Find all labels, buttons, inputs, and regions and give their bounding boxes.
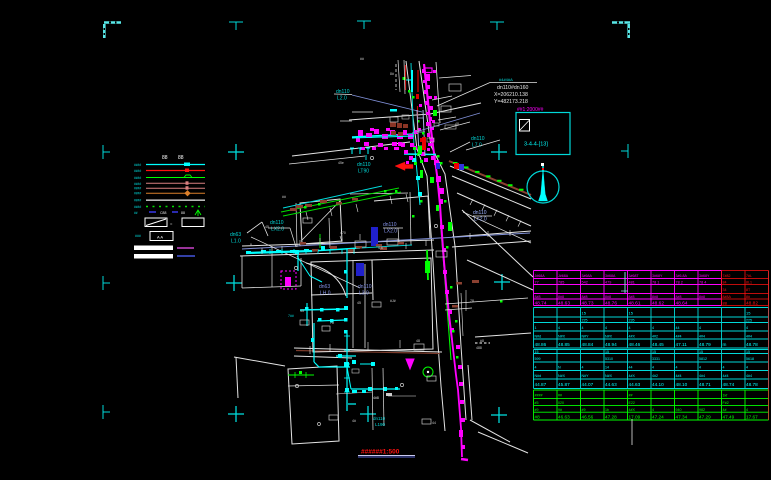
svg-text:48.82: 48.82	[746, 301, 758, 307]
svg-text:44.87: 44.87	[535, 382, 547, 387]
svg-text:dn110: dn110	[383, 222, 397, 228]
svg-text:N#d: N#d	[535, 335, 542, 339]
svg-text:dn110: dn110	[473, 210, 487, 216]
svg-text:Y=482173.218: Y=482173.218	[494, 99, 528, 105]
svg-text:L1.0: L1.0	[231, 239, 241, 245]
svg-text:47.24: 47.24	[652, 415, 664, 420]
svg-text:4: 4	[605, 326, 607, 330]
svg-text:4.6: 4.6	[378, 246, 383, 250]
svg-text:8#8: 8#8	[582, 295, 588, 299]
svg-text:dn110: dn110	[471, 136, 485, 142]
svg-text:15: 15	[746, 311, 751, 316]
svg-text:940: 940	[676, 408, 682, 412]
svg-text:J#68A: J#68A	[535, 274, 546, 278]
svg-text:15: 15	[699, 350, 703, 354]
svg-text:48.10: 48.10	[676, 382, 688, 387]
svg-text:5310: 5310	[605, 357, 613, 361]
svg-text:3#68T: 3#68T	[629, 274, 640, 278]
svg-text:44.63: 44.63	[629, 382, 641, 387]
svg-text:17.09: 17.09	[629, 415, 641, 420]
svg-text:48.94: 48.94	[605, 342, 617, 347]
svg-text:78 4: 78 4	[699, 281, 706, 285]
svg-text:47.11: 47.11	[676, 342, 688, 347]
svg-text:48.62: 48.62	[652, 301, 664, 307]
svg-text:48.45: 48.45	[652, 342, 664, 347]
svg-text:LX2.0: LX2.0	[384, 229, 397, 235]
svg-text:##: ##	[134, 211, 138, 215]
svg-text:47.29: 47.29	[699, 415, 711, 420]
svg-text:77: 77	[535, 281, 539, 285]
svg-text:8: 8	[250, 243, 252, 247]
svg-text:88: 88	[178, 155, 184, 161]
svg-text:982: 982	[699, 408, 705, 412]
svg-text:5618: 5618	[746, 357, 754, 361]
svg-text:4: 4	[652, 408, 654, 412]
svg-text:####: ####	[134, 187, 141, 191]
svg-text:4#X: 4#X	[629, 374, 636, 378]
svg-text:235: 235	[629, 319, 635, 323]
svg-text:470: 470	[340, 231, 346, 235]
svg-text:88: 88	[162, 155, 168, 161]
svg-text:48.86: 48.86	[535, 342, 547, 347]
svg-text:1: 1	[535, 326, 537, 330]
svg-text:48.63: 48.63	[558, 301, 570, 307]
svg-text:48.74: 48.74	[535, 301, 547, 307]
svg-text:46.63: 46.63	[558, 415, 570, 420]
svg-text:15: 15	[605, 350, 609, 354]
svg-text:4#: 4#	[723, 408, 727, 412]
svg-text:8L1: 8L1	[746, 281, 752, 285]
svg-text:dn63: dn63	[319, 284, 330, 290]
svg-text:8#8: 8#8	[535, 295, 541, 299]
svg-text:84: 84	[723, 281, 727, 285]
svg-text:L2.0: L2.0	[337, 96, 347, 102]
svg-text:######1:500: ######1:500	[361, 449, 400, 456]
svg-text:3#68Y: 3#68Y	[699, 274, 710, 278]
svg-text:#8: #8	[535, 415, 541, 420]
svg-text:48.76: 48.76	[605, 301, 617, 307]
svg-text:5812: 5812	[699, 357, 707, 361]
svg-text:4#: 4#	[352, 419, 356, 423]
svg-text:##: ##	[558, 394, 562, 398]
svg-text:A A: A A	[157, 235, 163, 240]
svg-text:####: ####	[134, 199, 141, 203]
svg-text:8#8: 8#8	[605, 295, 611, 299]
svg-text:44: 44	[432, 421, 436, 425]
svg-text:4#4: 4#4	[746, 335, 752, 339]
svg-text:15: 15	[582, 311, 587, 316]
svg-text:4#4: 4#4	[676, 335, 682, 339]
svg-text:3331: 3331	[652, 357, 660, 361]
svg-text:###: ###	[135, 234, 141, 238]
svg-text:15: 15	[652, 350, 656, 354]
svg-text:L=2.0: L=2.0	[474, 217, 487, 223]
svg-text:47.49: 47.49	[723, 415, 735, 420]
svg-text:dn110: dn110	[357, 162, 371, 168]
svg-text:4#8: 4#8	[373, 396, 379, 400]
svg-text:44: 44	[676, 326, 680, 330]
svg-text:48.74: 48.74	[723, 382, 735, 387]
svg-text:7#: 7#	[330, 321, 334, 325]
svg-text:44.10: 44.10	[652, 382, 664, 387]
svg-text:47.34: 47.34	[676, 415, 688, 420]
svg-text:14: 14	[605, 366, 609, 370]
svg-text:3#68Y: 3#68Y	[652, 274, 663, 278]
svg-text:44.63: 44.63	[605, 382, 617, 387]
svg-text:####: ####	[535, 394, 543, 398]
svg-text:785: 785	[558, 281, 564, 285]
svg-text:8#: 8#	[390, 72, 394, 76]
svg-text:8#8: 8#8	[652, 295, 658, 299]
svg-text:48: 48	[416, 339, 420, 343]
svg-text:####: ####	[134, 192, 141, 196]
svg-text:##: ##	[282, 195, 286, 199]
svg-text:dn110#dn160: dn110#dn160	[497, 85, 528, 91]
svg-text:#4#4#A: #4#4#A	[499, 77, 513, 82]
svg-text:dn110: dn110	[270, 220, 284, 226]
svg-text:48.46: 48.46	[629, 342, 641, 347]
svg-text:####: ####	[134, 169, 141, 173]
svg-text:7#82: 7#82	[723, 274, 731, 278]
svg-text:4: 4	[582, 326, 584, 330]
svg-text:4: 4	[699, 366, 701, 370]
svg-text:####: ####	[134, 182, 141, 186]
svg-text:488: 488	[476, 346, 482, 350]
svg-text:48.79: 48.79	[699, 342, 711, 347]
svg-text:m: m	[723, 342, 727, 347]
svg-text:####: ####	[134, 205, 141, 209]
svg-text:44.07: 44.07	[582, 382, 594, 387]
svg-text:7##: 7##	[288, 314, 294, 318]
svg-text:4: 4	[629, 326, 631, 330]
svg-text:N#X: N#X	[605, 374, 613, 378]
svg-text:8#8A: 8#8A	[723, 295, 732, 299]
svg-text:#9: #9	[582, 408, 586, 412]
svg-text:479: 479	[605, 281, 611, 285]
svg-text:N#d: N#d	[535, 374, 542, 378]
svg-text:34: 34	[723, 288, 727, 292]
svg-text:48.78: 48.78	[746, 382, 758, 387]
svg-text:F#2: F#2	[723, 401, 729, 405]
svg-text:4: 4	[535, 366, 537, 370]
svg-text:47.28: 47.28	[605, 415, 617, 420]
svg-text:8#8: 8#8	[676, 295, 682, 299]
svg-text:##: ##	[360, 57, 364, 61]
svg-text:N#X: N#X	[558, 335, 566, 339]
svg-text:4: 4	[699, 326, 701, 330]
svg-text:48.84: 48.84	[582, 342, 594, 347]
svg-text:4: 4	[652, 366, 654, 370]
svg-text:dn110: dn110	[358, 284, 372, 290]
svg-text:3#6.8A: 3#6.8A	[676, 274, 688, 278]
svg-text:N#Y: N#Y	[582, 374, 590, 378]
svg-text:45: 45	[300, 309, 304, 313]
svg-text:#5: #5	[535, 401, 539, 405]
svg-text:LH.0: LH.0	[320, 291, 331, 297]
svg-text:4#4: 4#4	[699, 374, 705, 378]
svg-text:dn110: dn110	[373, 416, 386, 421]
svg-text:8#8: 8#8	[629, 295, 635, 299]
svg-text:48.71: 48.71	[699, 382, 711, 387]
svg-text:4#4: 4#4	[746, 374, 752, 378]
svg-text:LX2.0: LX2.0	[271, 227, 284, 233]
svg-text:4: 4	[746, 366, 748, 370]
svg-text:48.85: 48.85	[558, 342, 570, 347]
svg-text:9#: 9#	[558, 408, 562, 412]
svg-text:LT90: LT90	[358, 169, 369, 175]
svg-text:45e: 45e	[338, 161, 344, 165]
svg-text:N#X: N#X	[605, 335, 613, 339]
svg-text:#J#: #J#	[390, 299, 396, 303]
svg-text:7#L: 7#L	[746, 274, 752, 278]
svg-text:48.64: 48.64	[676, 301, 688, 307]
svg-text:3#68A: 3#68A	[582, 274, 593, 278]
svg-text:88: 88	[723, 301, 728, 306]
svg-text:48.78: 48.78	[746, 342, 758, 347]
svg-text:#8: #8	[480, 339, 484, 343]
svg-text:3#68A: 3#68A	[605, 274, 616, 278]
svg-text:4: 4	[582, 366, 584, 370]
svg-text:4#X: 4#X	[629, 335, 636, 339]
svg-text:8#8: 8#8	[699, 295, 705, 299]
svg-text:15: 15	[535, 350, 539, 354]
svg-text:E22: E22	[629, 401, 635, 405]
svg-text:4: 4	[746, 408, 748, 412]
svg-text:4#2: 4#2	[652, 335, 658, 339]
svg-text:17.67: 17.67	[746, 415, 758, 420]
svg-text:4: 4	[652, 326, 654, 330]
svg-text:4: 4	[746, 326, 748, 330]
svg-text:88: 88	[181, 211, 185, 215]
svg-text:X=206210.138: X=206210.138	[494, 92, 528, 98]
svg-text:4#2: 4#2	[652, 374, 658, 378]
svg-text:225: 225	[746, 319, 752, 323]
svg-text:599: 599	[535, 357, 541, 361]
svg-text:N#X: N#X	[558, 374, 566, 378]
svg-text:4: 4	[558, 326, 560, 330]
svg-text:4#4: 4#4	[676, 374, 682, 378]
svg-text:4#4: 4#4	[723, 374, 729, 378]
svg-text:481: 481	[629, 281, 635, 285]
svg-text:3-4-4-[13]: 3-4-4-[13]	[524, 142, 548, 148]
svg-text:44: 44	[629, 366, 633, 370]
svg-text:542: 542	[582, 281, 588, 285]
svg-text:45.87: 45.87	[558, 382, 570, 387]
svg-text:46.56: 46.56	[582, 415, 594, 420]
svg-text:48.73: 48.73	[582, 301, 594, 307]
svg-text:225: 225	[582, 319, 588, 323]
svg-text:4#4: 4#4	[699, 335, 705, 339]
svg-text:####: ####	[134, 163, 141, 167]
svg-text:48.61: 48.61	[629, 301, 641, 307]
svg-text:15: 15	[629, 311, 634, 316]
svg-text:78 2: 78 2	[676, 281, 683, 285]
svg-text:####: ####	[134, 176, 141, 180]
svg-text:4: 4	[676, 366, 678, 370]
svg-text:#9: #9	[535, 408, 539, 412]
svg-text:##: ##	[629, 394, 633, 398]
svg-text:N: N	[558, 366, 561, 370]
svg-text:L3.0: L3.0	[359, 291, 369, 297]
svg-text:1b: 1b	[605, 408, 609, 412]
svg-text:15: 15	[746, 350, 750, 354]
svg-text:45: 45	[357, 301, 361, 305]
svg-text:4: 4	[723, 366, 725, 370]
svg-text:dn63: dn63	[230, 232, 241, 238]
svg-text:J#68A: J#68A	[558, 274, 569, 278]
svg-text:N#Y: N#Y	[582, 335, 590, 339]
svg-text:020: 020	[558, 401, 564, 405]
svg-text:C88: C88	[160, 211, 166, 215]
svg-text:1kf: 1kf	[723, 394, 728, 398]
svg-text:4#X: 4#X	[629, 408, 636, 412]
svg-text:78 1: 78 1	[652, 281, 659, 285]
svg-text:45: 45	[265, 225, 269, 229]
svg-text:8#: 8#	[746, 295, 750, 299]
svg-text:8#8: 8#8	[558, 295, 564, 299]
svg-text:L190: L190	[375, 422, 386, 427]
